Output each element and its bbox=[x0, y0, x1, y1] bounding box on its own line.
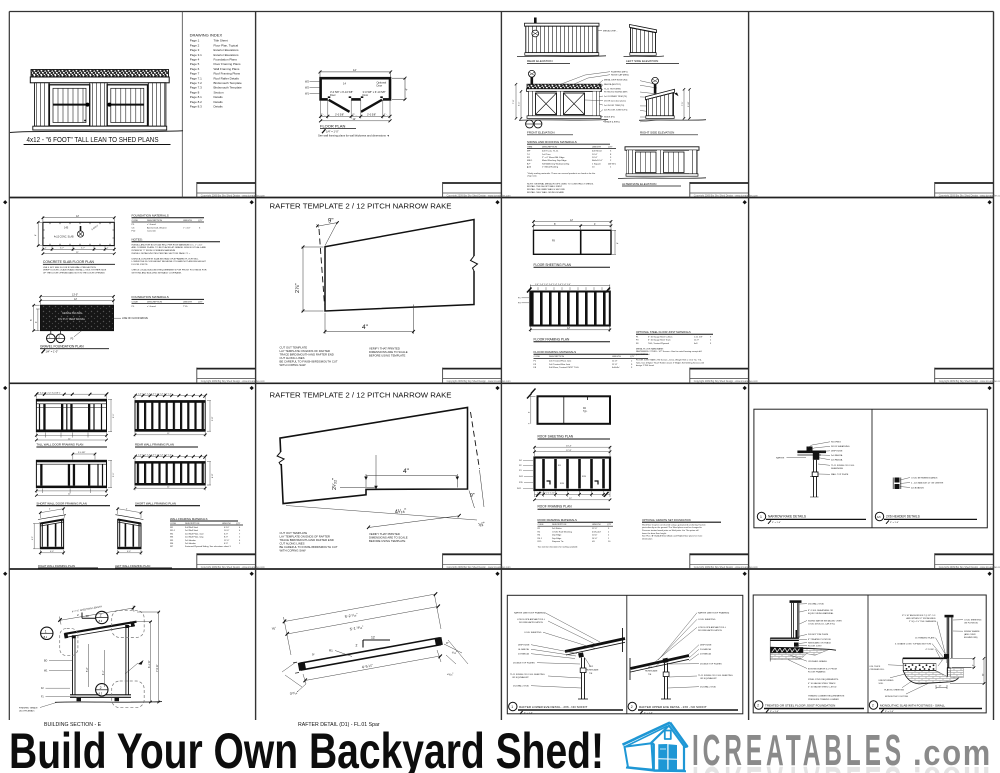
svg-text:Build Your Own Backyard Shed!: Build Your Own Backyard Shed! bbox=[9, 723, 604, 773]
svg-text:ICREATABLES: ICREATABLES bbox=[692, 757, 905, 773]
svg-text:.com: .com bbox=[913, 759, 992, 773]
